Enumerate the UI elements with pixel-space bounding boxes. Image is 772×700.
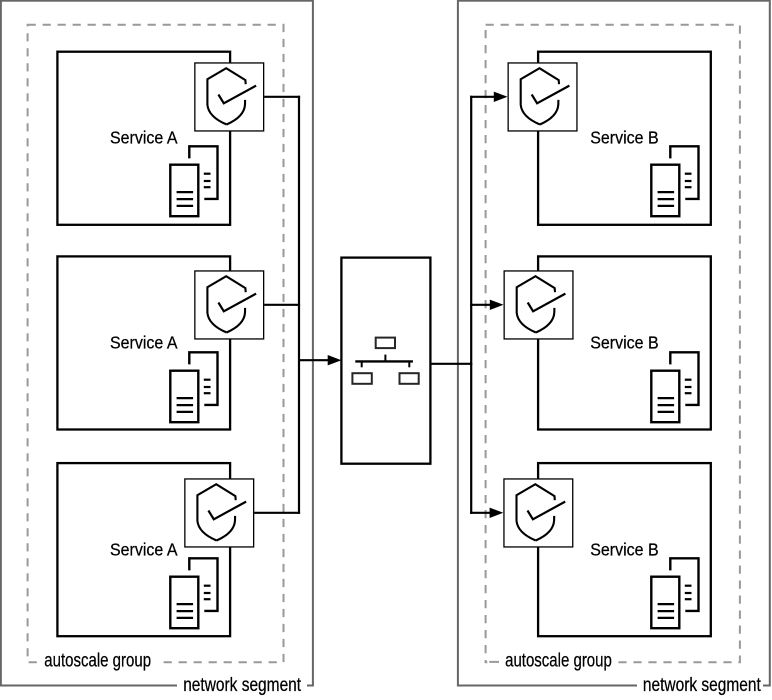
svg-text:autoscale group: autoscale group — [505, 650, 612, 671]
svg-text:Service A: Service A — [110, 128, 178, 148]
svg-text:autoscale group: autoscale group — [44, 650, 151, 671]
svg-text:Service B: Service B — [590, 128, 658, 148]
svg-text:Service B: Service B — [590, 540, 658, 560]
svg-text:network segment: network segment — [643, 674, 761, 696]
svg-text:network segment: network segment — [183, 674, 301, 696]
svg-text:Service A: Service A — [110, 333, 178, 353]
svg-text:Service A: Service A — [110, 540, 178, 560]
svg-text:Service B: Service B — [590, 333, 658, 353]
